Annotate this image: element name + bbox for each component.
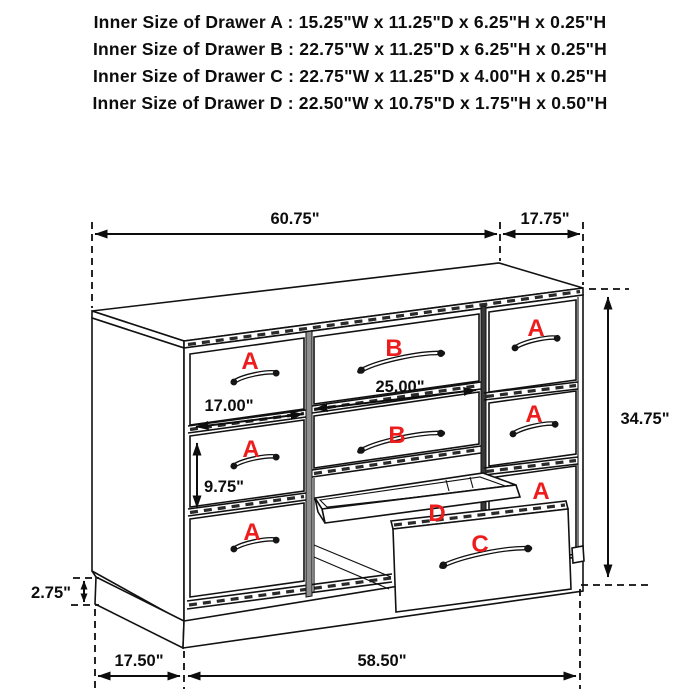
drawer-a-size-line: Inner Size of Drawer A : 15.25"W x 11.25… bbox=[0, 9, 700, 36]
drawer-a1-right-label: A bbox=[527, 315, 544, 342]
dim-label-base-depth: 17.50" bbox=[114, 652, 163, 670]
drawer-a3-left-label: A bbox=[243, 519, 260, 546]
dim-label-overall-height: 34.75" bbox=[620, 410, 669, 428]
drawer-c-label: C bbox=[471, 531, 488, 558]
drawer-a1-right-front bbox=[489, 300, 576, 392]
dim-label-middle-opening-width: 25.00" bbox=[375, 378, 424, 396]
dim-label-base-width: 58.50" bbox=[357, 652, 406, 670]
dim-label-base-height: 2.75" bbox=[31, 584, 71, 602]
dim-label-top-depth: 17.75" bbox=[520, 210, 569, 228]
drawer-b2-label: B bbox=[388, 422, 405, 449]
dim-label-left-opening-width: 17.00" bbox=[204, 397, 253, 415]
drawer-a2-right-label: A bbox=[525, 401, 542, 428]
drawer-a1-left-label: A bbox=[241, 348, 258, 375]
right-foot-bracket bbox=[572, 546, 584, 563]
furniture-dimension-sheet: A A A A A A B B C D bbox=[0, 0, 700, 700]
drawer-b1-label: B bbox=[385, 335, 402, 362]
drawer-size-header: Inner Size of Drawer A : 15.25"W x 11.25… bbox=[0, 9, 700, 117]
drawer-d-label: D bbox=[428, 500, 445, 527]
left-side-panel bbox=[92, 318, 184, 622]
drawer-a2-left-label: A bbox=[242, 436, 259, 463]
drawer-d-size-line: Inner Size of Drawer D : 22.50"W x 10.75… bbox=[0, 90, 700, 117]
drawer-a3-right-label: A bbox=[532, 478, 549, 505]
column-divider-left bbox=[306, 331, 312, 597]
dim-label-top-width: 60.75" bbox=[270, 210, 319, 228]
drawer-a3-left-front bbox=[190, 503, 304, 597]
drawer-b-size-line: Inner Size of Drawer B : 22.75"W x 11.25… bbox=[0, 36, 700, 63]
drawer-c-size-line: Inner Size of Drawer C : 22.75"W x 11.25… bbox=[0, 63, 700, 90]
dim-label-drawer-opening-height: 9.75" bbox=[204, 478, 244, 496]
